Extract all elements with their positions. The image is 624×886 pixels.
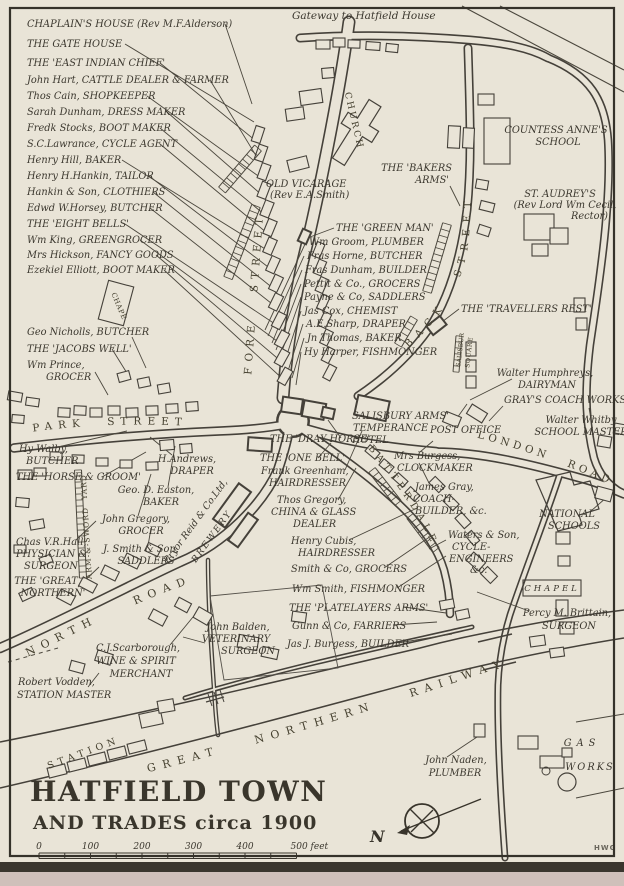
label-chas-hall-2: PHYSICIAN & [15, 549, 87, 560]
label-john-hart: John Hart, CATTLE DEALER & FARMER [25, 75, 229, 86]
label-waters-son-1: Waters & Son, [448, 530, 520, 541]
building [576, 318, 587, 330]
label-henry-cubis-2: HAIRDRESSER [297, 548, 376, 559]
label-hy-walby-2: BUTCHER [25, 456, 79, 467]
label-robert-vodden-1: Robert Vodden, [17, 677, 95, 688]
building [478, 94, 494, 105]
label-chas-hall-1: Chas V.R.Hall, [16, 537, 87, 548]
label-thos-gregory-2: CHINA & GLASS [271, 507, 356, 518]
label-henry-hankin: Henry H.Hankin, TAILOR [26, 171, 154, 182]
building [285, 107, 304, 121]
label-countess-annes-1: COUNTESS ANNE'S [504, 125, 607, 136]
label-geo-easton-2: BAKER [142, 497, 180, 508]
building [366, 42, 381, 51]
label-fras-horne: Fras Horne, BUTCHER [306, 251, 423, 262]
label-hy-walby-1: Hy Walby, [18, 444, 68, 455]
scale-tick-label: 200 [132, 842, 150, 852]
label-mrs-hickson: Mrs Hickson, FANCY GOODS [26, 250, 174, 261]
building [550, 228, 568, 244]
label-post-office: POST OFFICE [429, 425, 501, 436]
page-edge [0, 872, 624, 886]
map-title: HATFIELD TOWN [30, 775, 327, 808]
label-thos-gregory-1: Thos Gregory, [277, 495, 346, 506]
label-percy-brittain-1: Percy M. Brittain, [522, 608, 611, 619]
label-grays-coach-works: GRAY'S COACH WORKS [504, 395, 624, 406]
label-bakers-arms-2: ARMS' [414, 175, 449, 186]
label-mrs-burgess-2: CLOCKMAKER [397, 463, 473, 474]
building [108, 406, 120, 415]
label-h-andrews-1: H.Andrews, [157, 454, 216, 465]
label-green-man: THE 'GREEN MAN' [336, 223, 434, 234]
label-james-gray-1: James Gray, [413, 482, 474, 493]
scale-end-label: 500 feet [291, 842, 329, 852]
compass-north-label: N [369, 827, 386, 846]
label-percy-brittain-2: SURGEON [542, 621, 596, 632]
label-wm-smith: Wm Smith, FISHMONGER [292, 584, 426, 595]
label-thos-cain: Thos Cain, SHOPKEEPER [27, 91, 156, 102]
building [12, 414, 25, 423]
label-cj-scarborough-2: WINE & SPIRIT [96, 656, 177, 667]
label-mrs-burgess-1: Mrs Burgess, [393, 451, 460, 462]
label-wm-groom: Wm Groom, PLUMBER [309, 237, 424, 248]
building [556, 532, 570, 544]
label-henry-cubis-1: Henry Cubis, [290, 536, 356, 547]
building [455, 609, 470, 621]
label-walter-humphreys-1: Walter Humphreys, [497, 368, 594, 379]
building [321, 407, 335, 419]
building [146, 406, 158, 415]
label-jas-burgess: Jas J. Burgess, BUILDER [285, 639, 410, 650]
building [348, 40, 360, 48]
building [532, 244, 548, 256]
building [281, 397, 303, 415]
building [322, 67, 335, 78]
label-chapel-right: CHAPEL [524, 584, 580, 594]
building [540, 756, 564, 768]
building [186, 402, 199, 412]
building [386, 43, 399, 52]
label-gate-house: THE GATE HOUSE [27, 39, 122, 50]
building [26, 397, 40, 407]
label-smith-co: Smith & Co, GROCERS [291, 564, 407, 575]
building [439, 599, 454, 610]
label-cj-scarborough-3: MERCHANT [109, 669, 174, 680]
label-waters-son-2: CYCLE- [452, 542, 490, 553]
label-gunn-co: Gunn & Co, FARRIERS [292, 621, 406, 632]
label-payne-co: Payne & Co, SADDLERS [303, 292, 426, 303]
label-eight-bells: THE 'EIGHT BELLS' [27, 219, 129, 230]
page: { "page": { "credit": "HWG" }, "title": … [0, 0, 624, 886]
building [157, 383, 170, 394]
label-sarah-dunham: Sarah Dunham, DRESS MAKER [27, 107, 186, 118]
label-john-gregory-1: John Gregory, [100, 514, 170, 525]
label-henry-hill: Henry Hill, BAKER [26, 155, 122, 166]
scale-tick-label: 0 [36, 842, 42, 852]
label-salisbury-arms-1: SALISBURY ARMS' [352, 411, 449, 422]
label-waters-son-4: &c. [470, 565, 487, 576]
label-john-naden-2: PLUMBER [428, 768, 482, 779]
building [157, 699, 175, 714]
label-john-balden-1: John Balden, [204, 622, 269, 633]
label-fredk-stocks: Fredk Stocks, BOOT MAKER [26, 123, 171, 134]
label-ezekiel-elliott: Ezekiel Elliott, BOOT MAKER [26, 265, 175, 276]
label-john-naden-1: John Naden, [423, 755, 486, 766]
label-hankin-son: Hankin & Son, CLOTHIERS [26, 187, 166, 198]
label-old-vicarage-1: OLD VICARAGE [266, 179, 346, 190]
building [120, 460, 132, 468]
label-dray-horse: THE 'DRAY HORSE' [270, 434, 370, 445]
label-edwd-horsey: Edwd W.Horsey, BUTCHER [26, 203, 163, 214]
label-chaplains-house: CHAPLAIN'S HOUSE (Rev M.F.Alderson) [27, 19, 232, 30]
label-hy-harper: Hy Harper, FISHMONGER [303, 347, 438, 358]
label-national-schools-1: NATIONAL [538, 509, 595, 520]
building [74, 406, 86, 416]
label-sc-lawrance: S.C.Lawrance, CYCLE AGENT [27, 139, 178, 150]
scale-tick-label: 300 [185, 842, 202, 852]
label-st-audreys-3: Rector) [570, 211, 608, 222]
label-waters-son-3: ENGINEERS [448, 554, 514, 565]
hatfield-map: FORE STREETBACK STREETPARK STREETNORTH R… [0, 0, 624, 886]
label-east-indian-chief: THE 'EAST INDIAN CHIEF' [27, 58, 165, 69]
label-st-audreys-2: (Rev Lord Wm Cecil, [514, 200, 617, 211]
building [166, 404, 178, 414]
label-ae-sharp: A.E.Sharp, DRAPER [305, 319, 407, 330]
building [96, 458, 108, 466]
label-robert-vodden-2: STATION MASTER [17, 690, 112, 701]
label-jn-thomas: Jn Thomas, BAKER [305, 333, 402, 344]
building [29, 519, 44, 530]
label-horse-groom: THE 'HORSE & GROOM' [16, 472, 141, 483]
label-countess-annes-2: SCHOOL [535, 137, 580, 148]
building [137, 377, 151, 388]
building [518, 736, 538, 749]
building [16, 497, 30, 507]
building [562, 748, 572, 757]
building [180, 443, 193, 453]
label-one-bell: THE 'ONE BELL' [260, 453, 345, 464]
building [529, 635, 545, 647]
building [462, 128, 474, 149]
label-gateway-hatfield-house: Gateway to Hatfield House [292, 10, 436, 22]
label-john-balden-3: SURGEON [221, 646, 275, 657]
label-walter-humphreys-2: DAIRYMAN [517, 380, 576, 391]
label-frank-greenham-2: HAIRDRESSER [268, 478, 347, 489]
label-platelayers-arms: THE 'PLATELAYERS ARMS' [289, 603, 428, 614]
building [146, 462, 158, 470]
label-old-vicarage-2: (Rev E.A.Smith) [270, 190, 349, 201]
label-jas-cox: Jas Cox, CHEMIST [302, 306, 399, 317]
label-chas-hall-3: SURGEON [24, 561, 78, 572]
building [474, 724, 485, 737]
label-frank-greenham-1: Frank Greenham, [260, 466, 349, 477]
label-national-schools-2: SCHOOLS [548, 521, 600, 532]
label-geo-nicholls: Geo Nicholls, BUTCHER [27, 327, 150, 338]
label-fras-dunham: Fras Dunham, BUILDER [304, 265, 427, 276]
building [558, 556, 570, 566]
label-geo-easton-1: Geo. D. Easton, [118, 485, 195, 496]
building [475, 179, 488, 190]
building [549, 647, 564, 658]
label-gas: GAS [564, 738, 601, 749]
building [316, 40, 330, 49]
label-wm-prince-1: Wm Prince, [27, 360, 85, 371]
label-james-gray-2: COACH- [413, 494, 455, 505]
building [333, 38, 345, 47]
label-great-northern-pub-2: NORTHERN' [20, 588, 86, 599]
building [248, 437, 273, 452]
label-thos-gregory-3: DEALER [292, 519, 337, 530]
label-wm-king: Wm King, GREENGROCER [27, 235, 163, 246]
building [58, 408, 70, 418]
map-subtitle: AND TRADES circa 1900 [32, 812, 317, 834]
label-pettit-co: Pettit & Co., GROCERS [303, 279, 421, 290]
scale-tick-label: 400 [235, 842, 253, 852]
label-james-gray-3: BUILDER, &c. [414, 506, 487, 517]
label-cj-scarborough-1: C.J.Scarborough, [96, 643, 180, 654]
label-st-audreys-1: ST. AUDREY'S [524, 189, 596, 200]
building [447, 126, 460, 149]
label-john-balden-2: VETERINARY [202, 634, 272, 645]
building [90, 408, 102, 417]
label-travellers-rest: THE 'TRAVELLERS REST' [461, 304, 592, 315]
building [160, 439, 175, 450]
label-salisbury-arms-2: TEMPERANCE [353, 423, 428, 434]
label-h-andrews-2: DRAPER [169, 466, 214, 477]
building [299, 89, 323, 106]
label-great-northern-pub-1: THE 'GREAT [14, 576, 79, 587]
label-bakers-arms-1: THE 'BAKERS [381, 163, 452, 174]
label-john-gregory-2: GROCER [118, 526, 164, 537]
label-wm-prince-2: GROCER [46, 372, 92, 383]
label-walter-whitby-2: SCHOOL MASTER [534, 427, 624, 438]
building [466, 376, 476, 388]
scale-tick-label: 100 [82, 842, 99, 852]
label-jacobs-well: THE 'JACOBS WELL' [27, 344, 132, 355]
label-walter-whitby-1: Walter Whitby [546, 415, 617, 426]
page-bottom-rule [0, 862, 624, 872]
label-gas-works: WORKS [565, 762, 615, 773]
